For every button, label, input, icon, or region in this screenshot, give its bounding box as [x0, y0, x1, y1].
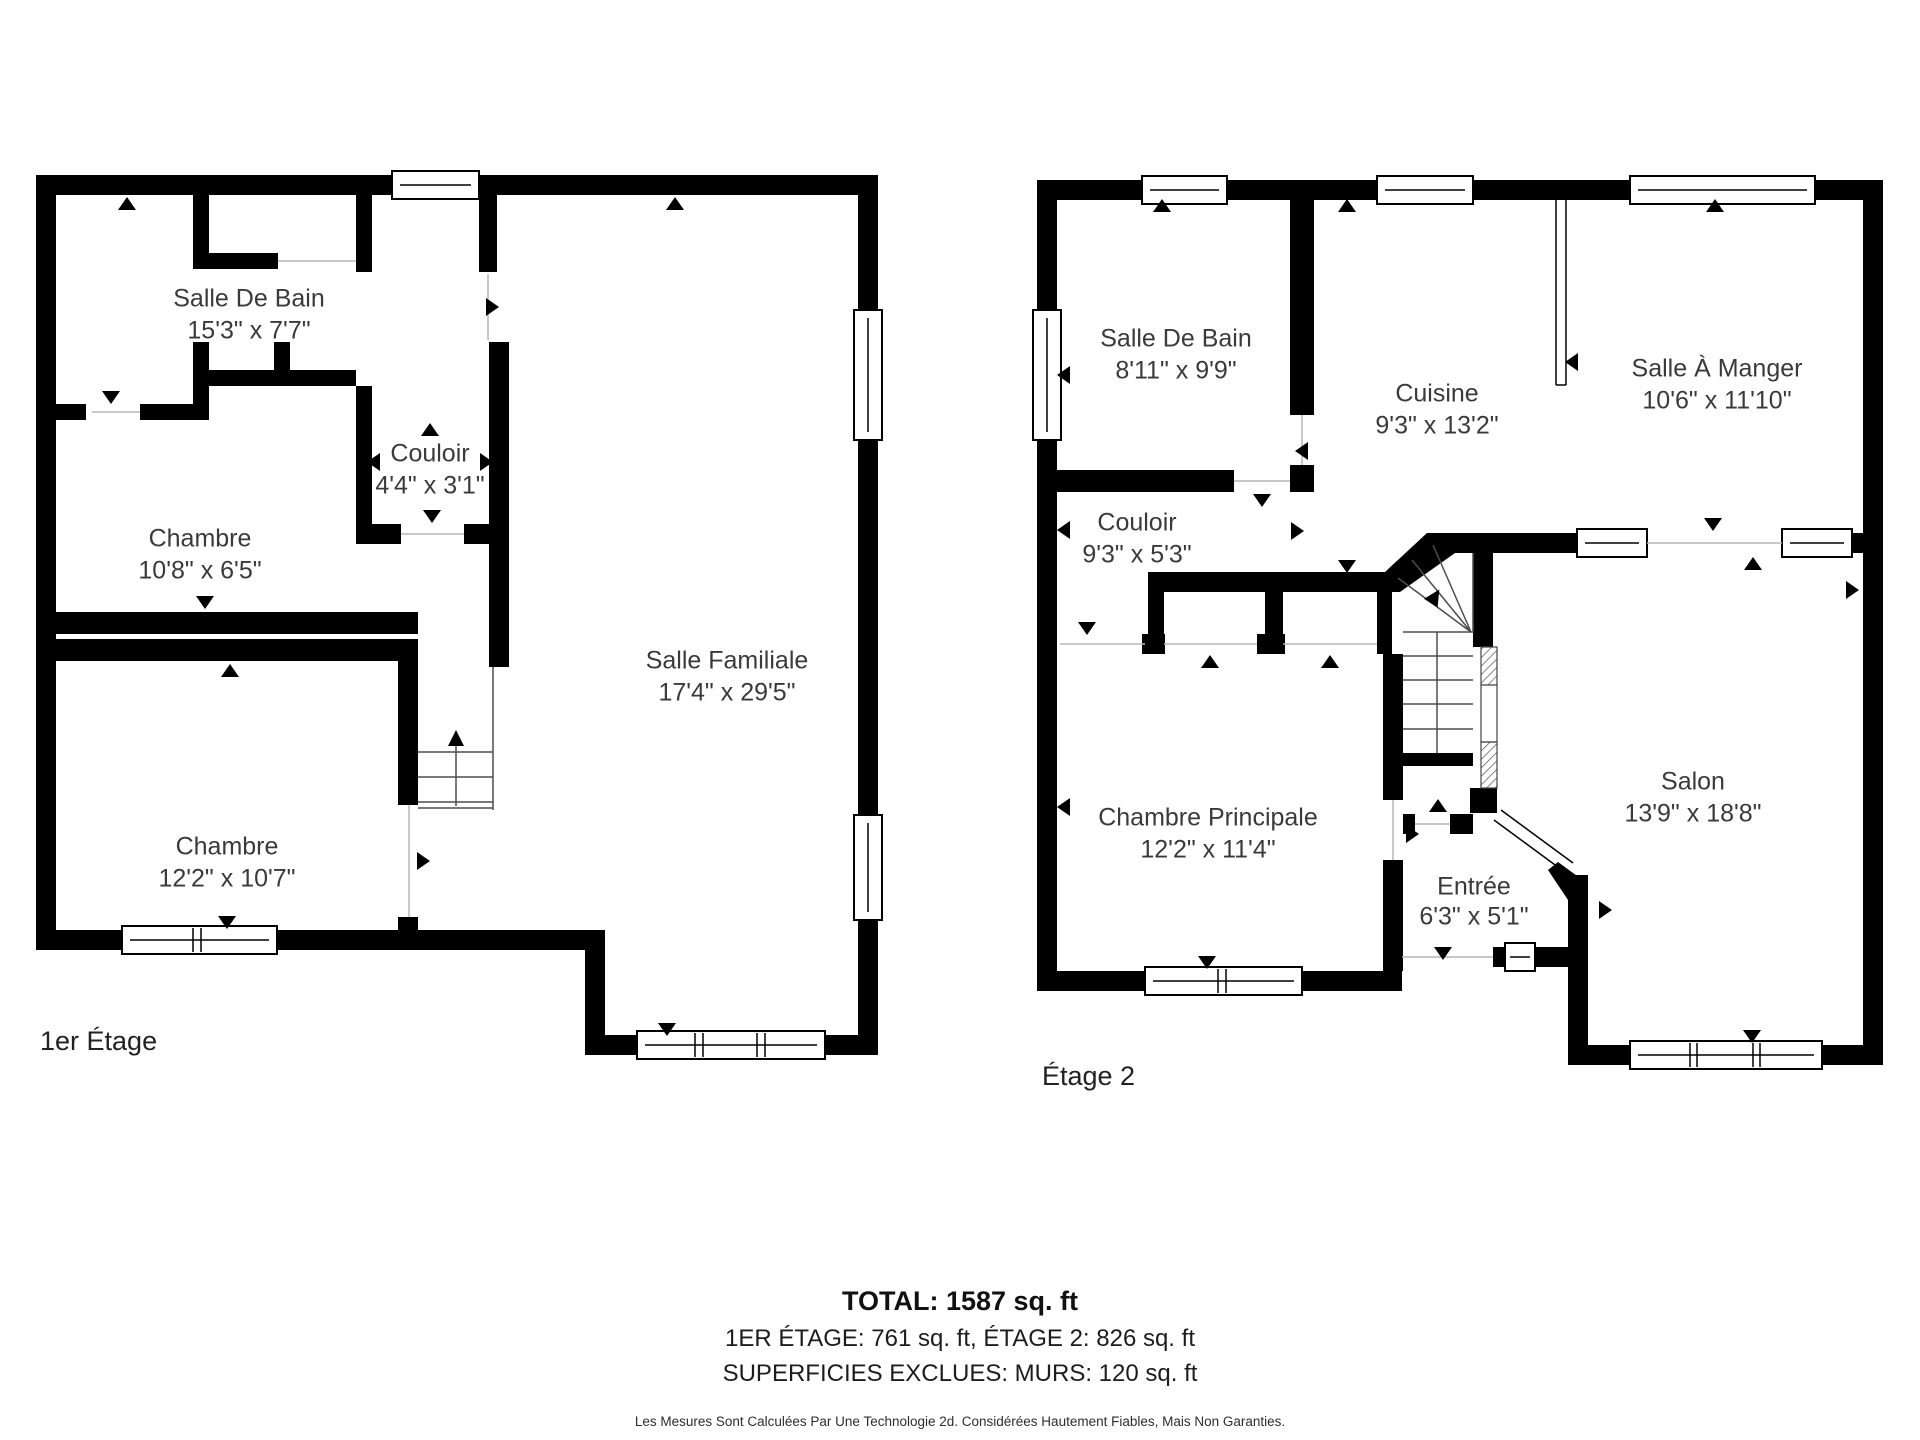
room-dims-cuisine-f2: 9'3" x 13'2" — [1375, 412, 1498, 440]
window-top-salle-a-manger-floor2 — [1630, 176, 1815, 204]
window-left-floor2 — [1033, 310, 1061, 440]
window-top-floor1 — [392, 171, 479, 199]
room-label-couloir-f1: Couloir — [390, 440, 469, 468]
stair-railing-hatch-bottom — [1481, 742, 1497, 788]
floor2-label: Étage 2 — [1042, 1061, 1135, 1091]
window-mid-1-floor2 — [1577, 529, 1647, 557]
window-top-sdb-floor2 — [1142, 176, 1227, 204]
stair-up-arrow-floor1 — [448, 730, 464, 746]
summary-disclaimer: Les Mesures Sont Calculées Par Une Techn… — [0, 1414, 1920, 1429]
room-dims-chambre2-f1: 12'2" x 10'7" — [158, 865, 295, 893]
floor2-thresholds — [1060, 415, 1782, 957]
room-dims-couloir-f1: 4'4" x 3'1" — [375, 472, 484, 500]
room-dims-salle-familiale-f1: 17'4" x 29'5" — [658, 679, 795, 707]
room-label-salle-de-bain-f1: Salle De Bain — [173, 285, 324, 313]
floorplan-canvas: Salle De Bain 15'3" x 7'7" Couloir 4'4" … — [0, 0, 1920, 1440]
room-label-salle-de-bain-f2: Salle De Bain — [1100, 325, 1251, 353]
summary-excluded: SUPERFICIES EXCLUES: MURS: 120 sq. ft — [0, 1360, 1920, 1388]
stair-railing-hatch-top — [1481, 647, 1497, 685]
window-top-cuisine-floor2 — [1377, 176, 1473, 204]
floor2-partition-divider — [1556, 200, 1566, 385]
room-label-entree-f2: Entrée — [1437, 873, 1511, 901]
room-label-chambre2-f1: Chambre — [176, 833, 279, 861]
window-entree-floor2 — [1505, 943, 1535, 971]
window-right-lower-floor1 — [854, 815, 882, 920]
room-dims-salon-f2: 13'9" x 18'8" — [1624, 800, 1761, 828]
floorplan-page: Salle De Bain 15'3" x 7'7" Couloir 4'4" … — [0, 0, 1920, 1440]
window-chambre-principale-floor2 — [1145, 967, 1302, 995]
room-dims-couloir-f2: 9'3" x 5'3" — [1082, 541, 1191, 569]
room-label-salon-f2: Salon — [1661, 768, 1725, 796]
summary-total: TOTAL: 1587 sq. ft — [0, 1286, 1920, 1317]
room-label-chambre-principale-f2: Chambre Principale — [1098, 804, 1318, 832]
room-label-chambre1-f1: Chambre — [149, 525, 252, 553]
floorplan-1er-etage: Salle De Bain 15'3" x 7'7" Couloir 4'4" … — [36, 171, 882, 1059]
room-label-salle-a-manger-f2: Salle À Manger — [1632, 354, 1803, 383]
floor1-label: 1er Étage — [40, 1026, 157, 1056]
room-dims-salle-a-manger-f2: 10'6" x 11'10" — [1642, 387, 1791, 415]
room-dims-entree-f2: 6'3" x 5'1" — [1419, 903, 1528, 931]
room-dims-salle-de-bain-f2: 8'11" x 9'9" — [1115, 357, 1236, 385]
room-dims-chambre1-f1: 10'8" x 6'5" — [138, 557, 261, 585]
summary-floors-line: 1ER ÉTAGE: 761 sq. ft, ÉTAGE 2: 826 sq. … — [0, 1325, 1920, 1353]
summary-block: TOTAL: 1587 sq. ft 1ER ÉTAGE: 761 sq. ft… — [0, 1286, 1920, 1429]
floor1-walls — [36, 175, 878, 1055]
window-mid-2-floor2 — [1782, 529, 1852, 557]
room-dims-salle-de-bain-f1: 15'3" x 7'7" — [187, 317, 310, 345]
window-bottom-left-floor1 — [122, 926, 277, 954]
staircase-floor1 — [418, 667, 493, 810]
room-label-salle-familiale-f1: Salle Familiale — [646, 647, 809, 675]
window-right-upper-floor1 — [854, 310, 882, 440]
room-label-cuisine-f2: Cuisine — [1395, 380, 1478, 408]
window-bottom-famille-floor1 — [637, 1031, 825, 1059]
room-label-couloir-f2: Couloir — [1097, 509, 1176, 537]
window-salon-floor2 — [1630, 1041, 1822, 1069]
floor2-walls — [1037, 180, 1883, 1065]
stair-railing-panel — [1481, 685, 1497, 742]
room-dims-chambre-principale-f2: 12'2" x 11'4" — [1140, 836, 1275, 864]
floorplan-etage-2: Salle De Bain 8'11" x 9'9" Cuisine 9'3" … — [1033, 176, 1883, 1091]
